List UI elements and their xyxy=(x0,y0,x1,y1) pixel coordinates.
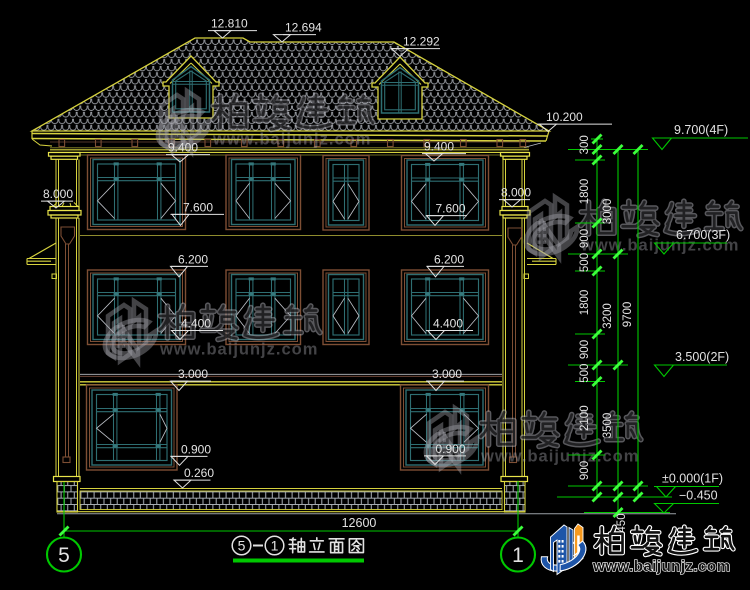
svg-text:10.200: 10.200 xyxy=(546,110,583,124)
svg-text:1800: 1800 xyxy=(579,179,591,205)
svg-text:±0.000(1F): ±0.000(1F) xyxy=(662,472,723,486)
svg-text:9.700(4F): 9.700(4F) xyxy=(674,123,728,137)
svg-text:2100: 2100 xyxy=(579,405,591,431)
svg-text:900: 900 xyxy=(579,461,591,480)
svg-text:−0.450: −0.450 xyxy=(679,489,718,503)
svg-text:450: 450 xyxy=(616,513,628,532)
svg-text:9.400: 9.400 xyxy=(424,140,454,154)
svg-text:300: 300 xyxy=(579,135,591,154)
svg-text:0.900: 0.900 xyxy=(436,442,466,456)
svg-text:7.600: 7.600 xyxy=(183,200,213,214)
svg-text:4.400: 4.400 xyxy=(433,316,463,330)
svg-text:3200: 3200 xyxy=(602,303,614,329)
svg-text:www.baijunjz.com: www.baijunjz.com xyxy=(480,448,639,466)
svg-text:www.baijunjz.com: www.baijunjz.com xyxy=(159,341,318,359)
svg-text:www.baijunjz.com: www.baijunjz.com xyxy=(212,131,371,149)
svg-text:4.400: 4.400 xyxy=(181,316,211,330)
svg-text:12.694: 12.694 xyxy=(285,21,322,35)
svg-text:3000: 3000 xyxy=(602,199,614,225)
svg-text:5: 5 xyxy=(238,538,246,554)
svg-text:1: 1 xyxy=(512,544,524,567)
svg-text:5: 5 xyxy=(58,544,70,567)
svg-text:900: 900 xyxy=(579,340,591,359)
svg-text:1: 1 xyxy=(271,538,279,554)
svg-text:900: 900 xyxy=(579,229,591,248)
svg-text:9.400: 9.400 xyxy=(168,141,198,155)
svg-text:12.810: 12.810 xyxy=(211,17,248,31)
svg-text:www.baijunjz.com: www.baijunjz.com xyxy=(592,558,730,575)
svg-text:500: 500 xyxy=(579,364,591,383)
svg-text:9700: 9700 xyxy=(622,302,634,328)
svg-text:3.000: 3.000 xyxy=(178,367,208,381)
svg-text:8.000: 8.000 xyxy=(43,187,73,201)
svg-text:0.260: 0.260 xyxy=(184,466,214,480)
svg-text:1800: 1800 xyxy=(579,290,591,316)
svg-text:6.200: 6.200 xyxy=(434,252,464,266)
svg-text:3.000: 3.000 xyxy=(432,367,462,381)
svg-text:12600: 12600 xyxy=(342,516,377,530)
svg-text:6.700(3F): 6.700(3F) xyxy=(676,228,730,242)
svg-text:0.900: 0.900 xyxy=(181,442,211,456)
svg-text:12.292: 12.292 xyxy=(403,35,440,49)
svg-text:3500: 3500 xyxy=(602,413,614,439)
svg-text:8.000: 8.000 xyxy=(501,186,531,200)
svg-text:6.200: 6.200 xyxy=(178,252,208,266)
svg-text:500: 500 xyxy=(579,253,591,272)
svg-text:3.500(2F): 3.500(2F) xyxy=(675,350,729,364)
svg-text:7.600: 7.600 xyxy=(436,202,466,216)
